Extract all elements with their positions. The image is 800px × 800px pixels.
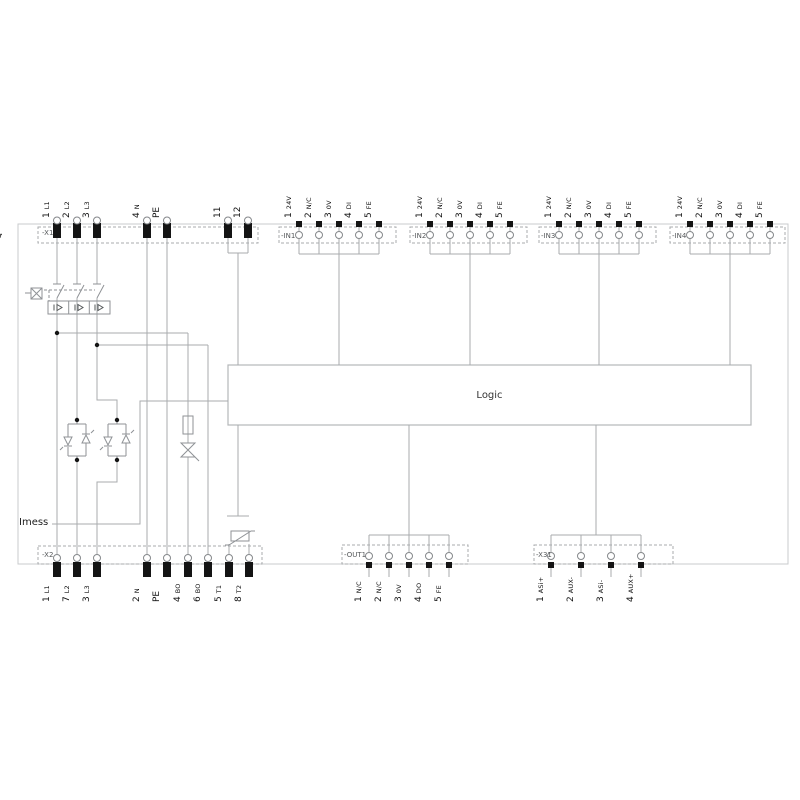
terminal-label: 2N/C: [304, 197, 314, 218]
terminal-ring: [556, 232, 563, 239]
terminal-ring: [638, 553, 645, 560]
terminal-name: 0V: [324, 200, 334, 209]
terminal-number: 7: [62, 596, 72, 602]
terminal-ring: [386, 553, 393, 560]
device-reference-label: -Q: [0, 232, 4, 243]
terminal-label: 2L2: [62, 201, 72, 218]
terminal-name: N: [132, 588, 142, 593]
terminal-contact: [225, 562, 233, 577]
terminal-contact: [296, 221, 302, 227]
terminal-name: T1: [214, 585, 224, 594]
terminal-contact: [93, 223, 101, 238]
terminal-number: 3: [715, 212, 725, 218]
terminal-name: L3: [82, 201, 92, 209]
terminal-ring: [164, 217, 171, 224]
terminal-ring: [578, 553, 585, 560]
terminal-ring: [316, 232, 323, 239]
terminal-label: 4DI: [475, 202, 485, 218]
terminal-ring: [246, 555, 253, 562]
terminal-name: L1: [42, 201, 52, 209]
breaker-pole-2: [73, 284, 84, 298]
terminal-name: L1: [42, 585, 52, 593]
terminal-ring: [225, 217, 232, 224]
terminal-contact: [245, 562, 253, 577]
terminal-ring: [608, 553, 615, 560]
block-label-in1: -IN1: [281, 232, 295, 240]
terminal-name: 24V: [284, 196, 294, 209]
terminal-number: 11: [213, 207, 223, 218]
terminal-label: 5FE: [364, 201, 374, 218]
bus-in3: [559, 254, 639, 365]
terminal-name: DO: [414, 583, 424, 594]
terminal-contact: [487, 221, 493, 227]
terminal-label: 30V: [394, 584, 404, 602]
terminal-number: 5: [364, 212, 374, 218]
terminal-number: 4: [414, 596, 424, 602]
terminal-label: 30V: [584, 200, 594, 218]
terminal-contact: [767, 221, 773, 227]
terminal-ring: [447, 232, 454, 239]
terminal-label: 6BO: [193, 583, 203, 602]
terminal-label: 4N: [132, 204, 142, 218]
block-label-out1: -OUT1: [344, 551, 366, 559]
terminal-contact: [446, 562, 452, 568]
terminal-number: 2: [62, 212, 72, 218]
wires: [52, 238, 249, 554]
terminal-number: 1: [675, 212, 685, 218]
terminal-contact: [163, 562, 171, 577]
terminal-contact: [366, 562, 372, 568]
terminal-contact: [143, 223, 151, 238]
terminal-ring: [74, 555, 81, 562]
terminal-name: FE: [624, 201, 634, 209]
terminal-label: 2N: [132, 588, 142, 602]
block-x31-outline: [534, 545, 673, 564]
terminal-number: 2: [566, 596, 576, 602]
block-label-in4: -IN4: [672, 232, 686, 240]
terminal-name: ASi-: [596, 580, 606, 594]
terminal-number: 1: [284, 212, 294, 218]
terminal-number: 3: [455, 212, 465, 218]
terminal-label: 1N/C: [354, 581, 364, 602]
terminal-name: DI: [475, 202, 485, 209]
terminal-label: 5FE: [755, 201, 765, 218]
terminal-number: 3: [324, 212, 334, 218]
bus-in1: [299, 254, 379, 365]
terminal-ring: [54, 217, 61, 224]
terminal-name: L2: [62, 201, 72, 209]
terminal-number: 4: [604, 212, 614, 218]
terminal-name: N: [132, 204, 142, 209]
terminal-ring: [144, 555, 151, 562]
terminal-ring: [54, 555, 61, 562]
terminal-number: 5: [434, 596, 444, 602]
terminal-contact: [548, 562, 554, 568]
terminal-contact: [184, 562, 192, 577]
terminal-contact: [707, 221, 713, 227]
terminal-contact: [224, 223, 232, 238]
terminal-label: 124V: [415, 196, 425, 218]
terminal-number: 4: [735, 212, 745, 218]
terminal-ring: [376, 232, 383, 239]
terminal-name: N/C: [354, 581, 364, 593]
terminal-ring: [296, 232, 303, 239]
terminal-contact: [73, 223, 81, 238]
terminal-ring: [507, 232, 514, 239]
terminal-ring: [576, 232, 583, 239]
terminal-ring: [336, 232, 343, 239]
thyristor-pair-l3: [100, 418, 134, 462]
terminal-contact: [427, 221, 433, 227]
terminal-number: 5: [214, 596, 224, 602]
terminal-label: 1L1: [42, 585, 52, 602]
terminal-number: 6: [193, 596, 203, 602]
terminal-contact: [687, 221, 693, 227]
terminal-label: 4AUX+: [626, 573, 636, 602]
terminal-name: DI: [604, 202, 614, 209]
terminal-label: 5T1: [214, 585, 224, 602]
terminal-label: 4DI: [604, 202, 614, 218]
terminal-label: 3L3: [82, 201, 92, 218]
terminal-contact: [73, 562, 81, 577]
terminal-label: 3L3: [82, 585, 92, 602]
terminal-name: PE: [152, 591, 162, 602]
terminal-number: 12: [233, 207, 243, 218]
terminal-name: DI: [735, 202, 745, 209]
terminal-name: L2: [62, 585, 72, 593]
terminal-contact: [638, 562, 644, 568]
terminal-contact: [53, 223, 61, 238]
terminal-name: L3: [82, 585, 92, 593]
terminal-name: T2: [234, 585, 244, 594]
terminal-name: FE: [495, 201, 505, 209]
terminal-label: 3ASi-: [596, 580, 606, 602]
terminal-name: 0V: [394, 584, 404, 593]
terminal-label: 11: [213, 207, 223, 218]
terminal-contact: [747, 221, 753, 227]
terminal-contact: [93, 562, 101, 577]
terminal-number: 4: [475, 212, 485, 218]
overcurrent-release-icon: [54, 305, 103, 311]
terminal-name: 24V: [675, 196, 685, 209]
terminal-label: 2N/C: [435, 197, 445, 218]
terminal-ring: [467, 232, 474, 239]
terminal-number: 1: [42, 212, 52, 218]
breaker-pole-1: [53, 284, 64, 298]
terminal-contact: [727, 221, 733, 227]
terminal-name: PE: [152, 207, 162, 218]
terminal-ring: [446, 553, 453, 560]
terminal-number: 3: [82, 212, 92, 218]
terminal-contact: [578, 562, 584, 568]
terminal-ring: [94, 555, 101, 562]
terminal-label: 5FE: [624, 201, 634, 218]
terminal-contact: [556, 221, 562, 227]
terminal-ring: [366, 553, 373, 560]
terminal-label: 4DI: [735, 202, 745, 218]
wire-l3: [97, 238, 117, 554]
terminal-number: 2: [564, 212, 574, 218]
terminal-name: N/C: [435, 197, 445, 209]
terminal-label: 8T2: [234, 585, 244, 602]
terminal-label: 2N/C: [695, 197, 705, 218]
terminal-ring: [727, 232, 734, 239]
terminal-label: 2N/C: [374, 581, 384, 602]
terminal-ring: [616, 232, 623, 239]
terminal-name: 0V: [455, 200, 465, 209]
terminal-label: 30V: [715, 200, 725, 218]
terminal-contact: [376, 221, 382, 227]
thermistor-icon: [225, 531, 255, 545]
terminal-number: 2: [374, 596, 384, 602]
terminal-number: 5: [495, 212, 505, 218]
terminal-ring: [596, 232, 603, 239]
terminal-ring: [747, 232, 754, 239]
terminal-label: 30V: [324, 200, 334, 218]
terminal-contact: [336, 221, 342, 227]
terminal-number: 1: [354, 596, 364, 602]
terminal-contact: [204, 562, 212, 577]
terminal-contact: [507, 221, 513, 227]
terminal-label: 5FE: [495, 201, 505, 218]
terminal-ring: [636, 232, 643, 239]
terminal-number: 3: [584, 212, 594, 218]
terminal-name: AUX-: [566, 577, 576, 593]
terminal-number: 2: [435, 212, 445, 218]
terminal-ring: [427, 232, 434, 239]
terminal-contact: [447, 221, 453, 227]
bus-in4: [690, 254, 770, 365]
terminal-ring: [767, 232, 774, 239]
terminal-number: 4: [173, 596, 183, 602]
terminal-label: 12: [233, 207, 243, 218]
bus-x31: [551, 425, 641, 535]
terminal-number: 5: [755, 212, 765, 218]
terminal-ring: [144, 217, 151, 224]
terminal-label: 2AUX-: [566, 577, 576, 602]
thyristor-pair-l2: [60, 418, 94, 462]
terminal-name: ASi+: [536, 577, 546, 594]
terminal-ring: [94, 217, 101, 224]
terminal-number: 8: [234, 596, 244, 602]
terminal-label: PE: [152, 591, 162, 602]
terminal-contact: [596, 221, 602, 227]
block-label-x2: -X2: [42, 551, 53, 559]
terminal-label: 2N/C: [564, 197, 574, 218]
terminal-label: 1ASi+: [536, 577, 546, 602]
terminal-contact: [616, 221, 622, 227]
terminal-name: 24V: [415, 196, 425, 209]
terminal-name: N/C: [564, 197, 574, 209]
terminal-name: BO: [173, 583, 183, 593]
terminal-contact: [163, 223, 171, 238]
terminal-number: 4: [344, 212, 354, 218]
terminal-ring: [205, 555, 212, 562]
triac-icon: [181, 443, 199, 461]
terminal-ring: [406, 553, 413, 560]
terminal-ring: [356, 232, 363, 239]
terminal-name: 0V: [715, 200, 725, 209]
terminal-name: DI: [344, 202, 354, 209]
terminal-label: 4DI: [344, 202, 354, 218]
terminal-contact: [467, 221, 473, 227]
terminal-name: BO: [193, 583, 203, 593]
terminal-contact: [608, 562, 614, 568]
bus-in2: [430, 254, 510, 365]
terminal-ring: [226, 555, 233, 562]
terminal-ring: [245, 217, 252, 224]
terminal-number: 2: [695, 212, 705, 218]
terminal-label: 1L1: [42, 201, 52, 218]
terminal-name: FE: [364, 201, 374, 209]
terminal-number: 1: [536, 596, 546, 602]
terminal-name: N/C: [374, 581, 384, 593]
terminal-number: 4: [132, 212, 142, 218]
terminal-ring: [426, 553, 433, 560]
terminal-number: 2: [304, 212, 314, 218]
terminal-number: 1: [42, 596, 52, 602]
terminal-contact: [244, 223, 252, 238]
block-label-x31: -X31: [536, 551, 552, 559]
terminal-contact: [386, 562, 392, 568]
terminal-name: FE: [434, 585, 444, 593]
terminal-number: 4: [626, 596, 636, 602]
terminal-label: 124V: [284, 196, 294, 218]
terminal-ring: [185, 555, 192, 562]
terminal-contact: [406, 562, 412, 568]
terminal-name: FE: [755, 201, 765, 209]
bus-out1: [369, 425, 449, 535]
terminal-label: 30V: [455, 200, 465, 218]
terminal-label: 5FE: [434, 585, 444, 602]
terminal-contact: [53, 562, 61, 577]
wiring-diagram: -Q Logic Imess -X11L12L23L34NPE1112-IN11…: [0, 0, 800, 800]
terminal-ring: [487, 232, 494, 239]
terminal-number: 3: [596, 596, 606, 602]
terminal-name: 0V: [584, 200, 594, 209]
terminal-ring: [707, 232, 714, 239]
terminal-number: 3: [82, 596, 92, 602]
terminal-name: AUX+: [626, 573, 636, 593]
terminal-contact: [576, 221, 582, 227]
terminal-label: 124V: [675, 196, 685, 218]
block-label-in3: -IN3: [541, 232, 555, 240]
terminal-name: N/C: [304, 197, 314, 209]
terminal-name: N/C: [695, 197, 705, 209]
imess-label: Imess: [19, 517, 48, 528]
terminal-label: 124V: [544, 196, 554, 218]
terminal-label: 4DO: [414, 583, 424, 602]
terminal-number: 1: [415, 212, 425, 218]
terminal-label: 4BO: [173, 583, 183, 602]
terminal-contact: [426, 562, 432, 568]
terminal-name: 24V: [544, 196, 554, 209]
terminal-ring: [164, 555, 171, 562]
terminal-contact: [316, 221, 322, 227]
wire-functional-earth: [227, 425, 249, 516]
terminal-ring: [74, 217, 81, 224]
terminal-ring: [687, 232, 694, 239]
block-label-x1: -X1: [42, 229, 53, 237]
wire-11-12: [228, 238, 248, 365]
terminal-number: 1: [544, 212, 554, 218]
terminal-contact: [143, 562, 151, 577]
terminal-number: 5: [624, 212, 634, 218]
terminal-contact: [636, 221, 642, 227]
terminal-label: PE: [152, 207, 162, 218]
terminal-number: 2: [132, 596, 142, 602]
terminal-contact: [356, 221, 362, 227]
logic-label: Logic: [228, 365, 751, 425]
breaker-pole-3: [93, 284, 104, 298]
terminal-label: 7L2: [62, 585, 72, 602]
wire-bo2: [97, 345, 208, 554]
block-label-in2: -IN2: [412, 232, 426, 240]
terminal-number: 3: [394, 596, 404, 602]
